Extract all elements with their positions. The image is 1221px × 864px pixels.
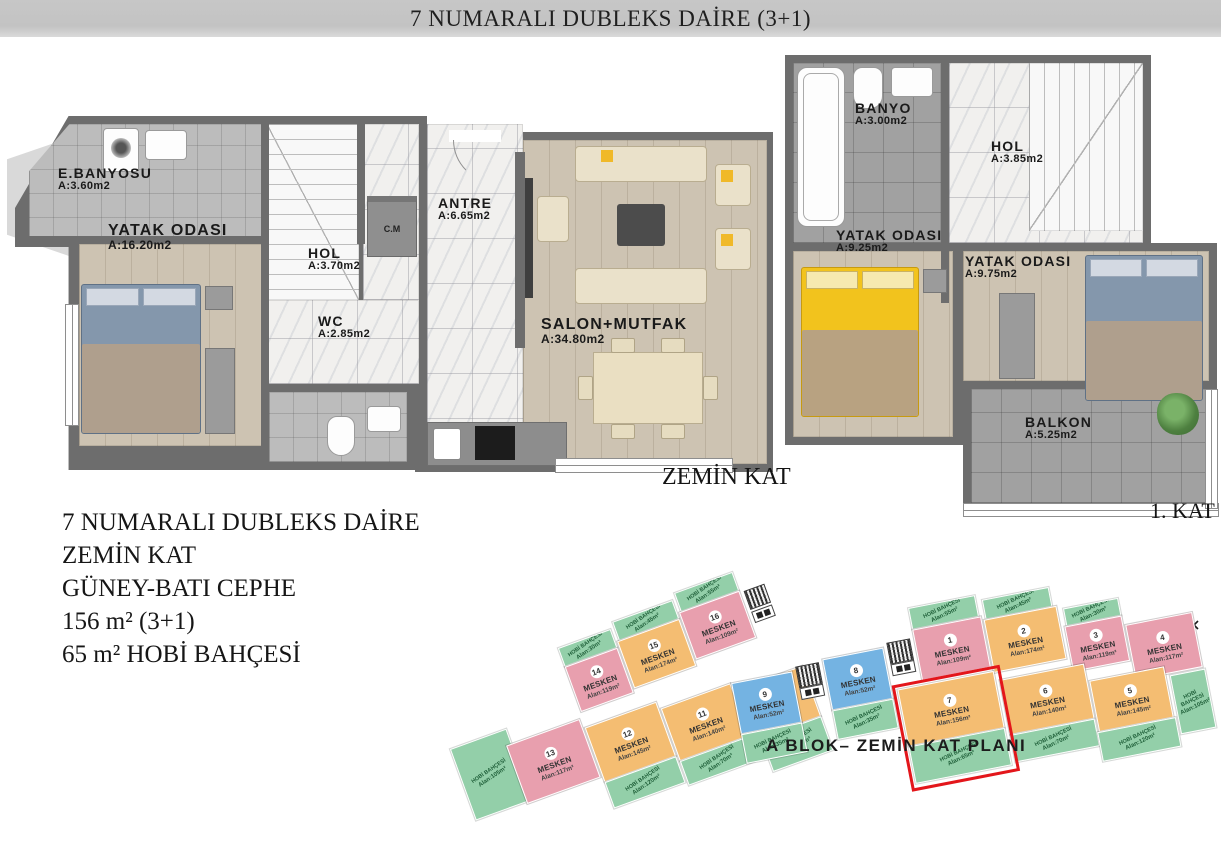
dining-chair bbox=[661, 424, 685, 439]
bed-yellow bbox=[801, 267, 919, 417]
bed-pillows bbox=[1090, 259, 1198, 277]
yellow-cushion-2 bbox=[721, 170, 733, 182]
info-line: GÜNEY-BATI CEPHE bbox=[62, 572, 420, 605]
plant-icon bbox=[1157, 393, 1199, 435]
armchair-left bbox=[537, 196, 569, 242]
closet-cm: C.M bbox=[367, 196, 417, 257]
info-line: 65 m² HOBİ BAHÇESİ bbox=[62, 638, 420, 671]
wall-wc-top bbox=[269, 384, 419, 392]
room-label-hol-upper: HOL A:3.85m2 bbox=[991, 139, 1043, 166]
info-line: 156 m² (3+1) bbox=[62, 605, 420, 638]
site-plan-caption: A BLOK– ZEMİN KAT PLANI bbox=[766, 736, 1026, 756]
room-label-banyo: BANYO A:3.00m2 bbox=[855, 101, 912, 128]
dining-chair bbox=[578, 376, 593, 400]
site-plan: HOBİ BAHÇESİAlan:105m² HOBİ BAHÇESİAlan:… bbox=[440, 560, 1221, 864]
sofa-top bbox=[575, 146, 707, 182]
bathtub-icon bbox=[797, 67, 845, 227]
wall-stairs-right bbox=[357, 124, 365, 244]
tv-unit bbox=[525, 178, 533, 298]
room-label-salon: SALON+MUTFAK A:34.80m2 bbox=[541, 316, 687, 346]
bed-blanket bbox=[1086, 321, 1202, 400]
bed-blanket bbox=[802, 330, 918, 416]
dining-chair bbox=[703, 376, 718, 400]
yellow-cushion-1 bbox=[601, 150, 613, 162]
staircase-ground bbox=[267, 124, 359, 300]
info-line: 7 NUMARALI DUBLEKS DAİRE bbox=[62, 506, 420, 539]
wall-banyo-right bbox=[941, 55, 949, 303]
wardrobe bbox=[999, 293, 1035, 379]
wc-sink-icon bbox=[367, 406, 401, 432]
bath-sink-icon bbox=[145, 130, 187, 160]
kitchen-sink-icon bbox=[433, 428, 461, 460]
ground-floor-plan: C.M E.BANYOSU A:3.60m2 YATA bbox=[15, 108, 775, 480]
title-bar: 7 NUMARALI DUBLEKS DAİRE (3+1) bbox=[0, 0, 1221, 37]
site-plan-right-wing: 9MESKENAlan:52m² HOBİ BAHÇESİAlan:35m² 8… bbox=[719, 551, 1221, 852]
wall-bedroom-right bbox=[261, 124, 269, 462]
dining-chair bbox=[611, 424, 635, 439]
bed-blanket bbox=[82, 344, 200, 433]
room-label-wc: WC A:2.85m2 bbox=[318, 314, 370, 341]
dining-table bbox=[593, 352, 703, 424]
wall-antre-left bbox=[419, 124, 427, 364]
first-floor-caption: 1. KAT bbox=[1150, 498, 1215, 524]
nightstand bbox=[205, 286, 233, 310]
wall-bedrooms-divider bbox=[955, 243, 963, 445]
room-label-antre: ANTRE A:6.65m2 bbox=[438, 196, 492, 223]
room-label-ebanyosu: E.BANYOSU A:3.60m2 bbox=[58, 166, 152, 193]
first-floor-plan: BANYO A:3.00m2 HOL A:3.85m2 YATAK ODASI … bbox=[785, 55, 1217, 530]
toilet-icon bbox=[327, 416, 355, 456]
bed-blue bbox=[1085, 255, 1203, 401]
page-canvas: 7 NUMARALI DUBLEKS DAİRE (3+1) bbox=[0, 0, 1221, 864]
bath-sink-icon bbox=[891, 67, 933, 97]
bed-pillows bbox=[806, 271, 914, 289]
coffee-table bbox=[617, 204, 665, 246]
bedroom-window bbox=[65, 304, 79, 426]
ground-floor-caption: ZEMİN KAT bbox=[662, 464, 791, 491]
room-label-yatak-2: YATAK ODASI A:9.75m2 bbox=[965, 254, 1071, 281]
page-title: 7 NUMARALI DUBLEKS DAİRE (3+1) bbox=[410, 6, 811, 32]
bed-double bbox=[81, 284, 201, 434]
bed-pillows bbox=[86, 288, 196, 306]
yellow-cushion-3 bbox=[721, 234, 733, 246]
balcony-railing-side bbox=[1205, 389, 1218, 509]
cooktop-icon bbox=[475, 426, 515, 460]
site-unit-3: 3MESKENAlan:119m² bbox=[1064, 616, 1130, 672]
wardrobe bbox=[205, 348, 235, 434]
room-label-yatak-odasi: YATAK ODASI A:16.20m2 bbox=[108, 222, 228, 252]
room-label-yatak-1: YATAK ODASI A:9.25m2 bbox=[836, 228, 942, 255]
sofa-bottom bbox=[575, 268, 707, 304]
nightstand bbox=[923, 269, 947, 293]
room-label-balkon: BALKON A:5.25m2 bbox=[1025, 415, 1092, 442]
staircase-first bbox=[1029, 63, 1143, 231]
info-block: 7 NUMARALI DUBLEKS DAİRE ZEMİN KAT GÜNEY… bbox=[62, 506, 420, 671]
wall-tv bbox=[515, 152, 525, 348]
closet-cm-label: C.M bbox=[384, 224, 401, 234]
highlight-outline-unit-7 bbox=[892, 665, 1021, 792]
room-label-hol: HOL A:3.70m2 bbox=[308, 246, 360, 273]
info-line: ZEMİN KAT bbox=[62, 539, 420, 572]
